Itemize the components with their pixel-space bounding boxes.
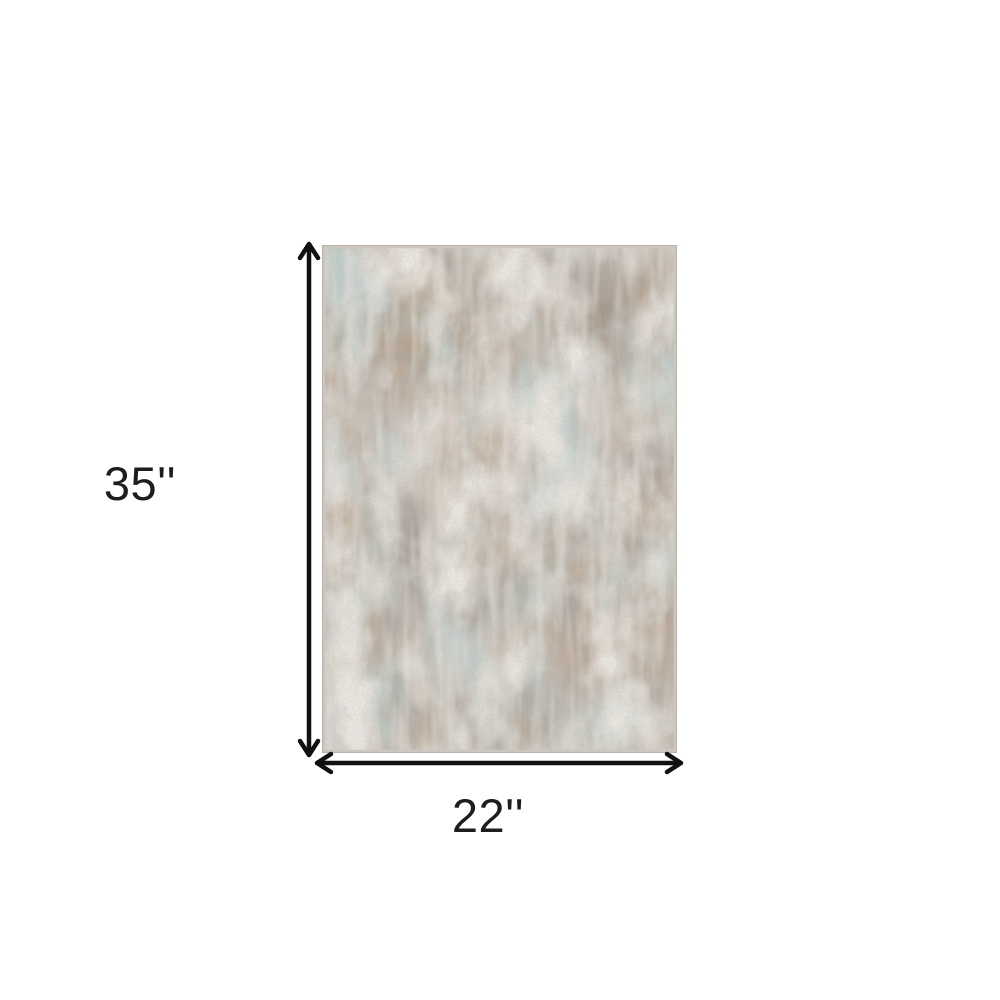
height-dimension-label: 35''	[58, 460, 222, 507]
rug-image	[322, 245, 677, 753]
up-arrowhead-icon	[300, 244, 318, 258]
rug-texture	[322, 245, 677, 753]
right-arrowhead-icon	[667, 754, 681, 772]
width-dimension-label: 22''	[406, 792, 570, 839]
down-arrowhead-icon	[300, 741, 318, 755]
left-arrowhead-icon	[317, 754, 331, 772]
page-canvas: 35'' 22''	[0, 0, 1000, 1000]
